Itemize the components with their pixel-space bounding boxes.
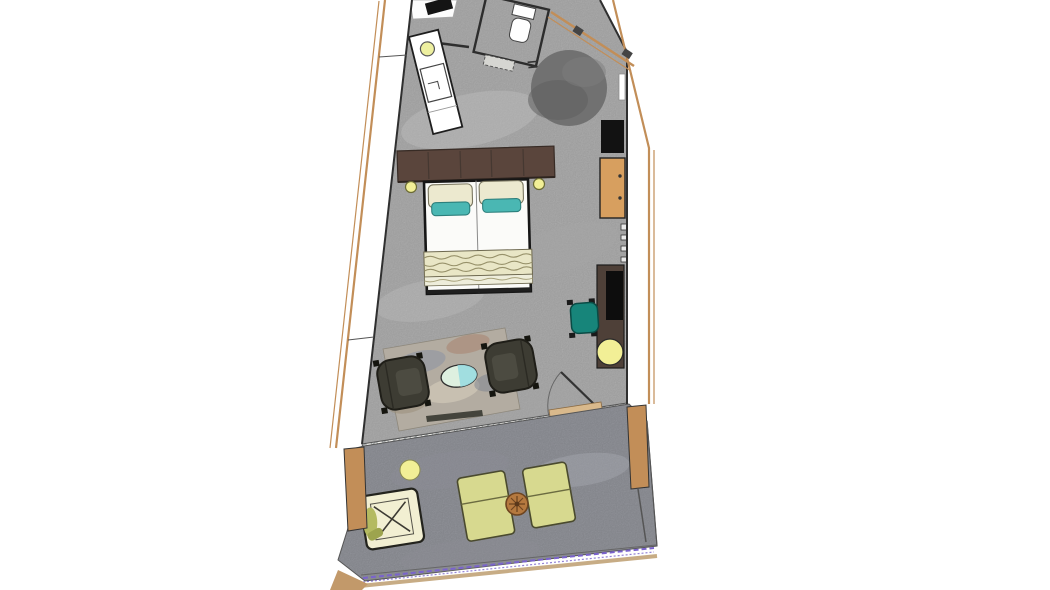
floor-plan-page [0,0,1050,590]
wood-post-right [627,405,649,489]
laptop [606,271,623,320]
wardrobe-handle [618,196,621,199]
wardrobe-handle [618,174,621,177]
window-reveal [619,74,625,100]
desk [597,265,624,368]
hanging-chair [357,488,425,551]
accent-pillow-left [432,202,470,216]
desk-lamp [597,339,623,365]
terrace-table [506,493,528,515]
terrace-ceiling-light [400,460,420,480]
headboard [397,146,555,182]
sun-lounger-right [522,462,576,529]
double-bed [422,179,533,294]
wood-post-left [344,447,367,531]
bedside-light-left [406,182,417,193]
accent-pillow-right [482,198,520,212]
throw-blanket [424,249,533,286]
tv-panel [601,120,624,153]
wardrobe [600,158,625,218]
floor-plan-canvas [0,0,1050,590]
bedside-light-right [534,179,545,190]
